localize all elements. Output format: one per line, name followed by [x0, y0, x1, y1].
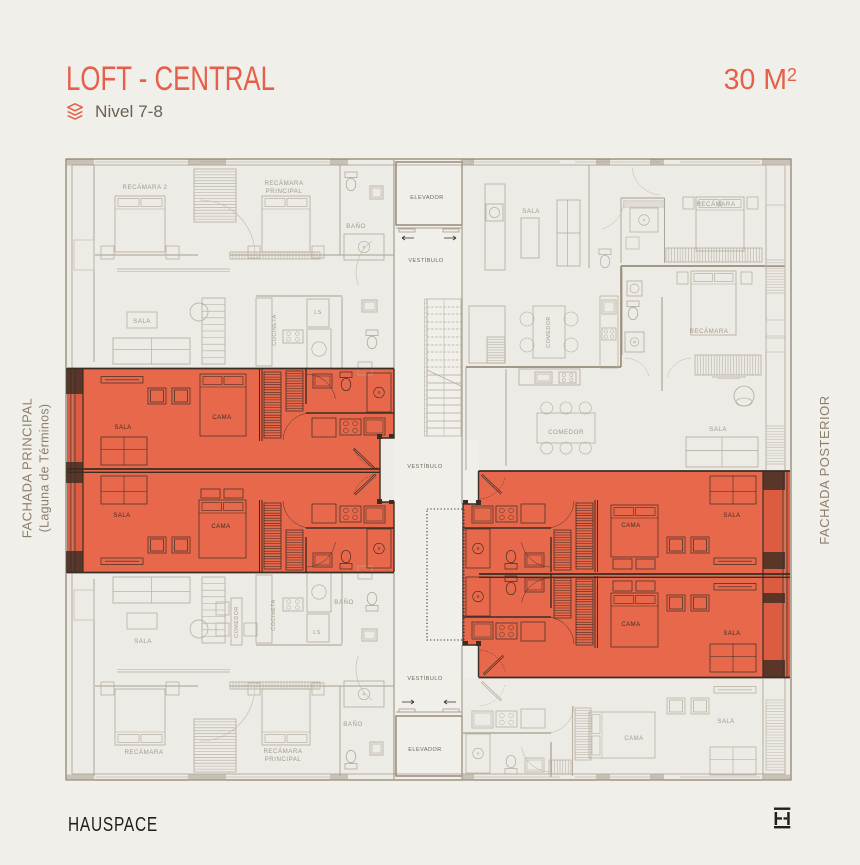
svg-text:COCINETA: COCINETA — [271, 599, 277, 630]
svg-text:SALA: SALA — [723, 513, 740, 519]
svg-text:LOFT - CENTRAL: LOFT - CENTRAL — [66, 60, 275, 98]
svg-text:30 M2: 30 M2 — [724, 64, 797, 96]
svg-text:RECÁMARA: RECÁMARA — [263, 748, 302, 755]
svg-text:ELEVADOR: ELEVADOR — [410, 195, 444, 201]
svg-text:CAMA: CAMA — [621, 523, 640, 529]
svg-text:BAÑO: BAÑO — [346, 223, 366, 230]
svg-text:COMEDOR: COMEDOR — [548, 429, 584, 436]
svg-text:PRINCIPAL: PRINCIPAL — [265, 756, 302, 763]
svg-text:VESTÍBULO: VESTÍBULO — [407, 675, 443, 682]
svg-text:SALA: SALA — [114, 425, 131, 431]
svg-text:RECÁMARA: RECÁMARA — [689, 328, 728, 335]
svg-text:SALA: SALA — [134, 638, 152, 645]
svg-text:SALA: SALA — [709, 426, 727, 433]
svg-text:CAMA: CAMA — [621, 622, 640, 628]
svg-text:SALA: SALA — [717, 719, 734, 725]
svg-text:VESTÍBULO: VESTÍBULO — [407, 463, 443, 470]
svg-text:BAÑO: BAÑO — [334, 599, 354, 606]
svg-text:RECÁMARA 2: RECÁMARA 2 — [123, 184, 168, 191]
svg-text:(Laguna de Términos): (Laguna de Términos) — [38, 404, 52, 533]
svg-text:HAUSPACE: HAUSPACE — [68, 814, 158, 836]
svg-text:COMEDOR: COMEDOR — [546, 316, 552, 348]
svg-text:RECÁMARA: RECÁMARA — [696, 201, 735, 208]
svg-text:ELEVADOR: ELEVADOR — [408, 747, 442, 753]
svg-text:BAÑO: BAÑO — [343, 721, 363, 728]
svg-text:SALA: SALA — [133, 318, 151, 325]
svg-text:PRINCIPAL: PRINCIPAL — [266, 188, 303, 195]
svg-text:FACHADA PRINCIPAL: FACHADA PRINCIPAL — [20, 398, 35, 538]
svg-text:COMEDOR: COMEDOR — [234, 606, 240, 638]
svg-text:LS: LS — [313, 630, 321, 636]
svg-text:COCINETA: COCINETA — [272, 314, 278, 345]
svg-text:CAMA: CAMA — [211, 524, 230, 530]
svg-text:LS: LS — [314, 310, 322, 316]
svg-text:SALA: SALA — [522, 208, 540, 215]
svg-text:Nivel 7-8: Nivel 7-8 — [95, 103, 163, 121]
svg-text:CAMA: CAMA — [624, 736, 643, 742]
svg-text:SALA: SALA — [113, 513, 130, 519]
svg-text:RECÁMARA: RECÁMARA — [124, 749, 163, 756]
svg-text:VESTÍBULO: VESTÍBULO — [408, 257, 444, 264]
svg-text:FACHADA POSTERIOR: FACHADA POSTERIOR — [817, 395, 832, 544]
svg-text:SALA: SALA — [723, 631, 740, 637]
svg-text:CAMA: CAMA — [212, 415, 231, 421]
svg-text:RECÁMARA: RECÁMARA — [264, 180, 303, 187]
